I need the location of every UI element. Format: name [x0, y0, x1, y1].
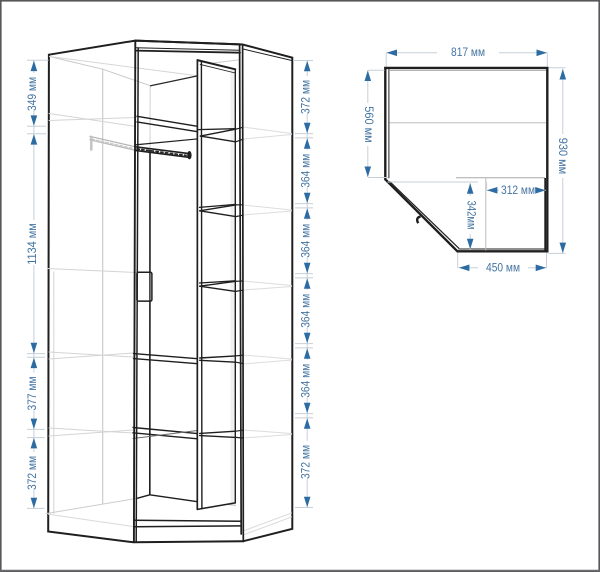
- svg-text:372 мм: 372 мм: [298, 80, 312, 114]
- svg-text:372 мм: 372 мм: [298, 445, 312, 479]
- svg-text:349 мм: 349 мм: [25, 77, 39, 111]
- svg-text:377 мм: 377 мм: [25, 377, 39, 411]
- svg-text:817 мм: 817 мм: [451, 45, 485, 59]
- svg-text:930 мм: 930 мм: [556, 138, 570, 175]
- svg-text:342мм: 342мм: [464, 201, 478, 230]
- svg-text:560 мм: 560 мм: [362, 106, 376, 143]
- svg-text:364 мм: 364 мм: [298, 294, 312, 328]
- svg-text:364 мм: 364 мм: [298, 154, 312, 188]
- svg-text:450 мм: 450 мм: [486, 260, 520, 274]
- svg-text:312 мм: 312 мм: [501, 183, 535, 197]
- svg-text:1134 мм: 1134 мм: [25, 223, 39, 265]
- svg-text:364 мм: 364 мм: [298, 364, 312, 398]
- svg-text:364 мм: 364 мм: [298, 224, 312, 258]
- svg-text:372 мм: 372 мм: [25, 456, 39, 490]
